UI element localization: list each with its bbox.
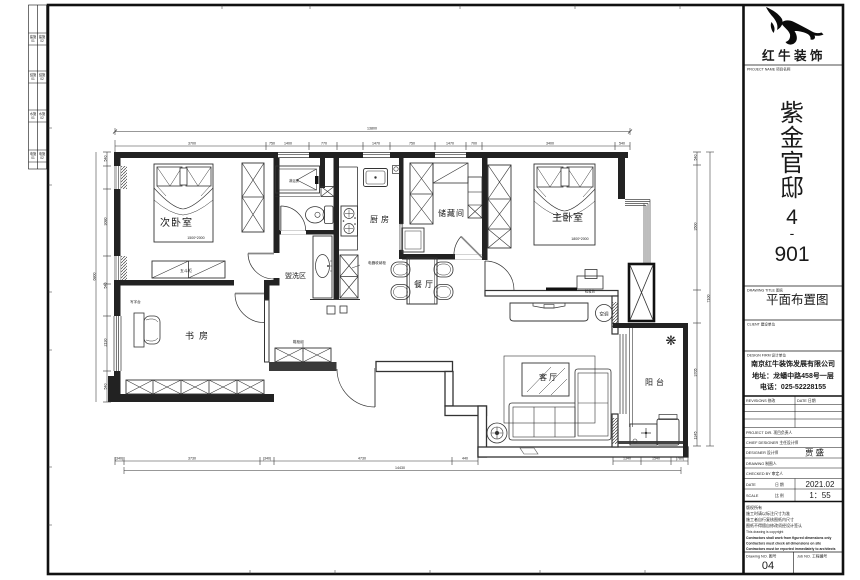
svg-text:淋浴房: 淋浴房 bbox=[289, 178, 300, 183]
svg-text:(340): (340) bbox=[115, 457, 123, 461]
svg-text:-: - bbox=[790, 225, 795, 241]
svg-text:3400: 3400 bbox=[546, 142, 554, 146]
svg-text:540: 540 bbox=[104, 156, 108, 162]
svg-text:440: 440 bbox=[462, 457, 468, 461]
svg-text:700: 700 bbox=[471, 142, 477, 146]
svg-text:3730: 3730 bbox=[188, 457, 196, 461]
svg-text:梳妆台: 梳妆台 bbox=[585, 289, 596, 294]
svg-text:DESIGN FIRM 设计单位: DESIGN FIRM 设计单位 bbox=[747, 353, 786, 358]
svg-text:厨房: 厨房 bbox=[370, 214, 392, 224]
svg-text:1：55: 1：55 bbox=[809, 491, 831, 500]
svg-text:DRAWING TITLE 图名: DRAWING TITLE 图名 bbox=[747, 288, 784, 293]
svg-text:PROJECT DIR. 项目负责人: PROJECT DIR. 项目负责人 bbox=[746, 430, 793, 435]
svg-text:901: 901 bbox=[774, 243, 809, 266]
svg-text:Drawing NO. 图号: Drawing NO. 图号 bbox=[746, 554, 777, 559]
svg-text:餐厅: 餐厅 bbox=[414, 280, 436, 289]
svg-text:DRAWING 制图人: DRAWING 制图人 bbox=[746, 461, 777, 466]
svg-text:7100: 7100 bbox=[707, 295, 711, 303]
svg-text:❋: ❋ bbox=[666, 333, 677, 348]
svg-text:13800: 13800 bbox=[367, 127, 377, 131]
svg-text:地址：龙蟠中路458号一层: 地址：龙蟠中路458号一层 bbox=[752, 371, 834, 380]
svg-text:1540: 1540 bbox=[652, 457, 660, 461]
svg-text:14430: 14430 bbox=[395, 466, 405, 470]
svg-text:PROJECT NAME 项目名称: PROJECT NAME 项目名称 bbox=[747, 67, 791, 72]
svg-text:1345: 1345 bbox=[694, 432, 698, 440]
svg-text:02: 02 bbox=[40, 39, 44, 43]
svg-text:04: 04 bbox=[762, 560, 774, 572]
svg-text:Job NO. 工程编号: Job NO. 工程编号 bbox=[797, 554, 827, 559]
svg-text:3705: 3705 bbox=[694, 369, 698, 377]
svg-text:1400: 1400 bbox=[284, 142, 292, 146]
svg-text:写字台: 写字台 bbox=[130, 299, 141, 304]
svg-text:750: 750 bbox=[269, 142, 275, 146]
svg-text:施工时请以标注尺寸为准: 施工时请以标注尺寸为准 bbox=[746, 510, 790, 516]
svg-text:主卧室: 主卧室 bbox=[552, 211, 584, 224]
svg-text:01: 01 bbox=[31, 156, 35, 160]
svg-text:Contractors must be reported i: Contractors must be reported immediately… bbox=[746, 547, 836, 551]
svg-text:DESIGNER 设计师: DESIGNER 设计师 bbox=[746, 450, 778, 455]
svg-text:盥洗区: 盥洗区 bbox=[285, 271, 306, 280]
svg-text:770: 770 bbox=[321, 142, 327, 146]
svg-text:2021.02: 2021.02 bbox=[806, 480, 835, 489]
svg-text:Contractors shall work from fi: Contractors shall work from figured dime… bbox=[746, 536, 831, 540]
svg-text:图纸不得擅自修改须经设计签认: 图纸不得擅自修改须经设计签认 bbox=[746, 522, 802, 528]
svg-text:DATE: DATE bbox=[746, 483, 756, 487]
svg-text:540: 540 bbox=[619, 142, 625, 146]
svg-text:2130: 2130 bbox=[104, 339, 108, 347]
svg-text:施工者自行复核图纸内尺寸: 施工者自行复核图纸内尺寸 bbox=[746, 516, 794, 522]
svg-text:750: 750 bbox=[409, 142, 415, 146]
svg-text:空调: 空调 bbox=[600, 311, 609, 318]
svg-text:紫: 紫 bbox=[780, 100, 804, 127]
svg-text:阳台: 阳台 bbox=[645, 377, 667, 387]
svg-text:REVISIONS 修改: REVISIONS 修改 bbox=[746, 398, 776, 403]
svg-text:This drawing is copyright: This drawing is copyright bbox=[746, 530, 783, 534]
svg-text:02: 02 bbox=[40, 77, 44, 81]
svg-text:储藏间: 储藏间 bbox=[438, 208, 465, 218]
svg-text:(340): (340) bbox=[263, 457, 271, 461]
svg-text:6800: 6800 bbox=[93, 273, 97, 281]
svg-text:次卧室: 次卧室 bbox=[160, 216, 193, 229]
svg-text:CHIEF DESIGNER 主任设计师: CHIEF DESIGNER 主任设计师 bbox=[746, 440, 799, 445]
svg-text:CHECKED BY 审定人: CHECKED BY 审定人 bbox=[746, 471, 783, 476]
svg-text:4730: 4730 bbox=[358, 457, 366, 461]
svg-text:540: 540 bbox=[104, 384, 108, 390]
svg-text:南京红牛装饰发展有限公司: 南京红牛装饰发展有限公司 bbox=[751, 359, 835, 368]
svg-text:1470: 1470 bbox=[372, 142, 380, 146]
svg-text:版权所有: 版权所有 bbox=[746, 504, 762, 510]
svg-text:(780): (780) bbox=[676, 457, 684, 461]
svg-text:01: 01 bbox=[31, 39, 35, 43]
svg-text:CLIENT 建设单位: CLIENT 建设单位 bbox=[747, 322, 775, 327]
svg-text:01: 01 bbox=[31, 77, 35, 81]
svg-text:比 例: 比 例 bbox=[775, 493, 784, 498]
svg-text:平面布置图: 平面布置图 bbox=[766, 293, 829, 307]
svg-text:540: 540 bbox=[694, 155, 698, 161]
svg-text:1800*2000: 1800*2000 bbox=[571, 237, 588, 241]
svg-text:电器收纳柜: 电器收纳柜 bbox=[368, 260, 386, 265]
svg-text:书房: 书房 bbox=[185, 330, 213, 341]
svg-text:3500: 3500 bbox=[694, 223, 698, 231]
svg-text:3700: 3700 bbox=[188, 142, 196, 146]
svg-text:Contractors must check all di: Contractors must check all dimensions on… bbox=[746, 542, 821, 546]
svg-text:02: 02 bbox=[40, 116, 44, 120]
svg-text:3080: 3080 bbox=[104, 218, 108, 226]
svg-text:1340: 1340 bbox=[623, 457, 631, 461]
svg-text:邸: 邸 bbox=[780, 175, 804, 202]
svg-text:五斗柜: 五斗柜 bbox=[180, 267, 192, 273]
svg-text:电话：025-52228155: 电话：025-52228155 bbox=[760, 382, 826, 391]
svg-text:1470: 1470 bbox=[446, 142, 454, 146]
svg-text:01: 01 bbox=[31, 116, 35, 120]
svg-text:金: 金 bbox=[780, 125, 804, 152]
svg-text:鞋柜组: 鞋柜组 bbox=[293, 339, 304, 344]
svg-text:02: 02 bbox=[40, 156, 44, 160]
svg-text:1500*2000: 1500*2000 bbox=[187, 236, 204, 240]
svg-text:540: 540 bbox=[104, 283, 108, 289]
svg-text:官: 官 bbox=[780, 150, 804, 177]
svg-text:SCALE: SCALE bbox=[746, 494, 759, 498]
svg-text:红牛装饰: 红牛装饰 bbox=[762, 48, 826, 63]
svg-text:日 期: 日 期 bbox=[775, 482, 784, 487]
svg-text:贾盛: 贾盛 bbox=[805, 448, 826, 458]
svg-text:DATE 日期: DATE 日期 bbox=[797, 398, 816, 403]
